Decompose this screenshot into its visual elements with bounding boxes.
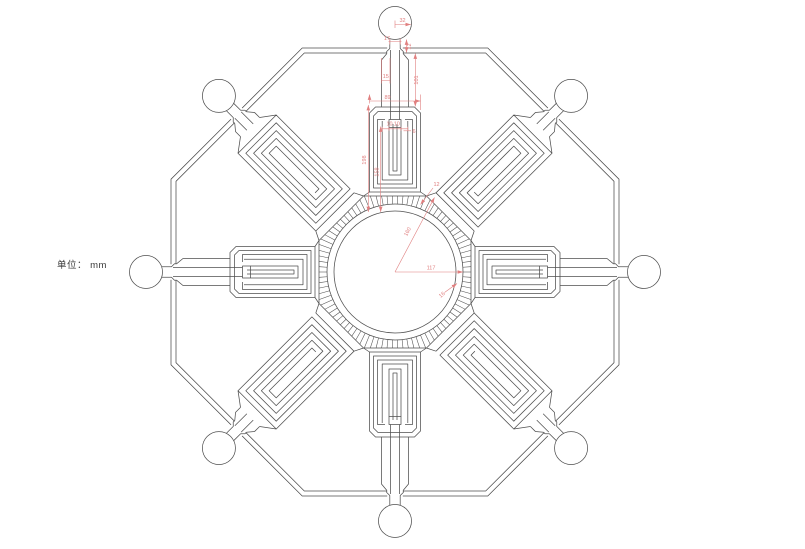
fin-line xyxy=(455,304,465,309)
fin-line xyxy=(319,250,330,253)
fin-line xyxy=(348,212,353,219)
drawing-canvas: 32 17 12 15 101 89 10 10 6 198 158 12 16… xyxy=(0,0,805,549)
fin-line xyxy=(447,316,453,321)
fin-line xyxy=(459,244,471,248)
fin-line xyxy=(437,326,442,333)
fin-line xyxy=(337,223,343,228)
fin-line xyxy=(319,281,328,282)
fin-line xyxy=(387,340,388,348)
fin-line xyxy=(337,316,343,321)
fin-line xyxy=(411,196,414,206)
fin-line xyxy=(425,200,430,211)
arm-top-left xyxy=(185,62,364,241)
arm-right xyxy=(471,241,661,304)
fin-line xyxy=(333,227,340,232)
fin-line xyxy=(411,338,414,348)
dim-channel-length: 101 xyxy=(414,75,420,84)
fin-line xyxy=(441,323,446,329)
fin-line xyxy=(437,212,442,219)
fin-line xyxy=(329,231,337,236)
dim-slot-right: 10 xyxy=(394,122,400,128)
fin-line xyxy=(325,304,335,309)
fin-line xyxy=(420,335,425,348)
units-label: 单位： mm xyxy=(57,259,107,271)
fin-line xyxy=(462,261,471,262)
fin-line xyxy=(360,200,365,211)
arm-bottom-left xyxy=(185,303,364,482)
fin-line xyxy=(356,204,361,213)
fin-line xyxy=(463,267,471,268)
fin-line xyxy=(370,337,374,348)
fin-line xyxy=(348,326,353,333)
dim-arm-length: 198 xyxy=(362,155,368,164)
dim-arm-width: 89 xyxy=(384,95,390,101)
fin-line xyxy=(370,196,374,207)
fin-line xyxy=(319,261,328,262)
fin-line xyxy=(352,208,357,216)
fin-line xyxy=(463,277,471,278)
fin-line xyxy=(420,196,425,209)
fin-line xyxy=(429,331,434,340)
dim-slot-left: 10 xyxy=(386,122,392,128)
fin-line xyxy=(364,196,369,209)
fin-line xyxy=(462,256,471,258)
technical-drawing: 32 17 12 15 101 89 10 10 6 198 158 12 16… xyxy=(0,0,805,549)
dim-slot-length: 158 xyxy=(374,167,380,176)
fin-line xyxy=(462,286,471,288)
fin-line xyxy=(319,277,327,278)
fin-line xyxy=(382,196,384,205)
fin-line xyxy=(460,291,471,294)
fin-line xyxy=(340,219,346,225)
fin-line xyxy=(344,323,349,329)
fin-line xyxy=(441,215,446,221)
fin-line xyxy=(319,286,328,288)
fin-line xyxy=(387,196,388,204)
dim-fin-ring-width: 12 xyxy=(433,182,439,188)
dim-radius-horizontal: 117 xyxy=(427,265,436,271)
fin-line xyxy=(450,312,457,317)
fin-line xyxy=(319,267,327,268)
fin-line xyxy=(460,250,471,253)
fin-line xyxy=(325,235,335,240)
fin-line xyxy=(416,337,420,348)
fin-line xyxy=(333,312,340,317)
fin-line xyxy=(340,319,346,325)
fin-line xyxy=(450,227,457,232)
fin-line xyxy=(319,256,328,258)
fin-line xyxy=(433,208,438,216)
dim-port-radius: 32 xyxy=(399,18,405,24)
fin-line xyxy=(352,328,357,336)
fin-line xyxy=(425,333,430,344)
fin-line xyxy=(344,215,349,221)
dim-channel-pitch: 15 xyxy=(383,74,389,80)
arm-left xyxy=(130,241,320,304)
fin-line xyxy=(319,295,331,299)
fin-line xyxy=(329,308,337,313)
dim-neck-length: 12 xyxy=(407,43,413,49)
fin-line xyxy=(321,300,333,305)
arm-bottom xyxy=(364,348,427,538)
fin-line xyxy=(356,331,361,340)
fin-line xyxy=(376,196,379,206)
fin-line xyxy=(321,239,333,244)
fin-line xyxy=(455,235,465,240)
fin-line xyxy=(416,196,420,207)
dim-neck-width: 17 xyxy=(384,36,390,42)
fin-line xyxy=(462,281,471,282)
fin-line xyxy=(457,300,469,305)
fin-line xyxy=(459,295,471,299)
fin-line xyxy=(447,223,453,228)
fin-line xyxy=(360,333,365,344)
fin-line xyxy=(402,196,403,204)
fin-line xyxy=(319,291,330,294)
dim-radius-angled: 160 xyxy=(403,227,413,238)
dim-slot-wall: 6 xyxy=(412,129,415,135)
fin-line xyxy=(444,319,450,325)
fin-line xyxy=(457,239,469,244)
arm-top-right xyxy=(426,62,605,241)
fin-line xyxy=(453,231,461,236)
fin-line xyxy=(407,339,409,348)
fin-line xyxy=(429,204,434,213)
fin-line xyxy=(402,340,403,348)
arm-bottom-right xyxy=(426,303,605,482)
fin-line xyxy=(444,219,450,225)
fin-line xyxy=(319,244,331,248)
fin-line xyxy=(453,308,461,313)
fin-line xyxy=(376,338,379,348)
fin-line xyxy=(433,328,438,336)
fin-line xyxy=(382,339,384,348)
fin-line xyxy=(364,335,369,348)
fin-line xyxy=(407,196,409,205)
